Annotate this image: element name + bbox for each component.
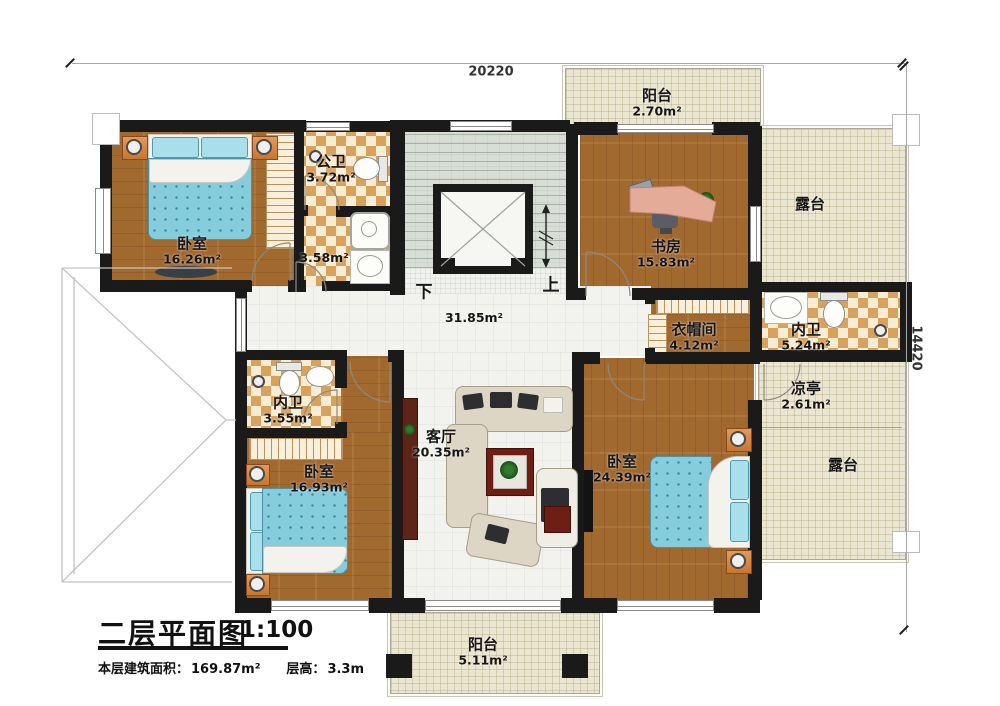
- toilet: [353, 157, 380, 180]
- room-name: 内卫: [263, 395, 312, 411]
- room-label-closet: 衣帽间 4.12m²: [669, 322, 718, 352]
- wall: [235, 428, 347, 438]
- table-lamp-icon: [730, 553, 746, 569]
- plan-scale: 1:100: [240, 617, 313, 643]
- floor-terrace-ne: [758, 128, 906, 286]
- wardrobe-bedroom-sw: [249, 438, 343, 460]
- window: [450, 121, 512, 131]
- wall: [645, 290, 655, 304]
- room-area: 3.55m²: [263, 411, 312, 425]
- balcony-column: [386, 654, 412, 678]
- table-lamp-icon: [249, 576, 265, 592]
- room-label-living: 客厅 20.35m²: [412, 429, 470, 459]
- room-name: 露台: [795, 197, 825, 213]
- room-name: 客厅: [412, 429, 470, 445]
- chimney-outline: [92, 113, 120, 145]
- window: [236, 298, 246, 352]
- room-label-terrace-ne: 露台: [795, 197, 825, 213]
- room-area: 20.35m²: [412, 445, 470, 459]
- sink: [770, 296, 802, 319]
- sofa-pillow: [517, 393, 539, 411]
- wall: [235, 598, 271, 613]
- room-label-bath-w: 内卫 3.55m²: [263, 395, 312, 425]
- ceiling-lamp-icon: [874, 324, 887, 337]
- media-cabinet: [402, 398, 418, 540]
- table-lamp-icon: [126, 139, 142, 155]
- room-label-shower-room: 3.58m²: [299, 251, 348, 265]
- room-name: 衣帽间: [669, 322, 718, 338]
- wall: [584, 352, 600, 364]
- elevator-door-jamb: [511, 258, 525, 266]
- roof-outline: [62, 268, 236, 582]
- plan-info: 本层建筑面积：169.87m²层高：3.3m: [98, 658, 366, 677]
- room-label-bedroom-nw: 卧室 16.26m²: [163, 236, 221, 266]
- wall: [750, 282, 912, 292]
- wall: [294, 281, 299, 291]
- stair-treads-right: [533, 186, 566, 270]
- shower-head: [361, 221, 377, 237]
- room-label-pavilion: 凉亭 2.61m²: [781, 381, 830, 411]
- room-area: 4.12m²: [669, 338, 718, 352]
- window: [750, 206, 761, 262]
- pillow: [730, 460, 749, 500]
- sink: [306, 366, 334, 387]
- wall: [714, 598, 760, 613]
- room-name: 书房: [637, 239, 695, 255]
- dimension-line-right: [906, 64, 907, 632]
- room-area: 15.83m²: [637, 255, 695, 269]
- room-name: 凉亭: [781, 381, 830, 397]
- room-label-public-bath: 公卫 3.72m²: [306, 154, 355, 184]
- wall-tv: [584, 470, 593, 532]
- window: [271, 600, 369, 611]
- table-lamp-icon: [256, 139, 272, 155]
- balcony-door-window: [617, 124, 714, 133]
- elevator-cab: [441, 192, 525, 266]
- toilet: [279, 370, 300, 396]
- room-label-balcony-top: 阳台 2.70m²: [632, 88, 681, 118]
- sink: [357, 255, 383, 277]
- room-area: 31.85m²: [445, 311, 503, 325]
- window: [306, 122, 350, 131]
- table-lamp-icon: [730, 431, 746, 447]
- floor-height-label: 层高：: [286, 662, 325, 677]
- wall: [235, 350, 347, 360]
- dimension-right-value: 14420: [909, 325, 924, 370]
- dimension-top-value: 20220: [468, 65, 513, 80]
- stair-treads-left: [405, 186, 435, 270]
- stair-treads-top: [405, 134, 566, 186]
- stair-up-label: 上: [543, 271, 560, 296]
- wall: [574, 122, 618, 135]
- room-name: 阳台: [458, 637, 507, 653]
- room-area: 24.39m²: [593, 470, 651, 484]
- wall: [100, 120, 306, 132]
- desk-chair-base: [660, 228, 672, 234]
- room-label-balcony-bottom: 阳台 5.11m²: [458, 637, 507, 667]
- room-area: 3.72m²: [306, 170, 355, 184]
- room-name: 公卫: [306, 154, 355, 170]
- floor-bedroom-sw-strip: [341, 356, 398, 436]
- wall: [750, 282, 762, 362]
- wall: [335, 350, 347, 388]
- room-area: 5.24m²: [781, 338, 830, 352]
- room-name: 内卫: [781, 322, 830, 338]
- floor-area-label: 本层建筑面积：: [98, 662, 189, 677]
- room-area: 3.58m²: [299, 251, 348, 265]
- pillow: [730, 502, 749, 542]
- stair-down-label: 下: [416, 278, 433, 303]
- sofa-pillow: [462, 393, 484, 411]
- room-area: 16.93m²: [290, 480, 348, 494]
- room-area: 2.61m²: [781, 397, 830, 411]
- room-name: 卧室: [290, 464, 348, 480]
- pillow: [201, 137, 248, 158]
- wall: [369, 598, 425, 613]
- room-label-hallway: 31.85m²: [445, 311, 503, 325]
- desk-chair: [652, 204, 678, 228]
- room-name: 卧室: [163, 236, 221, 252]
- room-area: 5.11m²: [458, 653, 507, 667]
- room-label-study: 书房 15.83m²: [637, 239, 695, 269]
- plant: [698, 192, 714, 208]
- wall: [566, 288, 586, 300]
- title-underline: [98, 646, 288, 650]
- wall: [750, 350, 912, 362]
- room-area: 16.26m²: [163, 252, 221, 266]
- wall: [566, 124, 578, 300]
- ceiling-lamp-icon: [252, 375, 265, 388]
- room-name: 露台: [828, 458, 858, 474]
- table-lamp-icon: [249, 466, 265, 482]
- elevator-door-jamb: [441, 258, 455, 266]
- room-label-bath-e: 内卫 5.24m²: [781, 322, 830, 352]
- wall: [646, 352, 760, 364]
- floor-plan: 卧室 16.26m² 公卫 3.72m² 3.58m² 阳台 2.70m² 书房…: [0, 0, 1000, 706]
- dimension-tick: [899, 625, 909, 635]
- tv-console: [155, 266, 217, 278]
- floor-height-value: 3.3m: [327, 662, 364, 677]
- room-name: 卧室: [593, 454, 651, 470]
- wall: [294, 205, 308, 216]
- plant: [500, 461, 518, 479]
- room-label-terrace-se: 露台: [828, 458, 858, 474]
- window: [95, 188, 111, 254]
- balcony-sliding-door: [425, 600, 561, 611]
- bed-sheet: [149, 159, 251, 183]
- room-label-bedroom-se: 卧室 24.39m²: [593, 454, 651, 484]
- sofa-pillow: [490, 392, 512, 408]
- bed-sheet: [263, 546, 347, 573]
- sofa-pillow: [543, 397, 563, 413]
- pillow: [152, 137, 199, 158]
- pavilion-terrace-divider: [760, 427, 902, 428]
- window: [617, 600, 714, 611]
- room-area: 2.70m²: [632, 104, 681, 118]
- room-name: 阳台: [632, 88, 681, 104]
- wall: [561, 598, 617, 613]
- side-table: [544, 506, 571, 533]
- floor-area-value: 169.87m²: [191, 662, 260, 677]
- balcony-column: [562, 654, 588, 678]
- bed: [650, 456, 712, 548]
- wall: [100, 280, 252, 292]
- room-label-bedroom-sw: 卧室 16.93m²: [290, 464, 348, 494]
